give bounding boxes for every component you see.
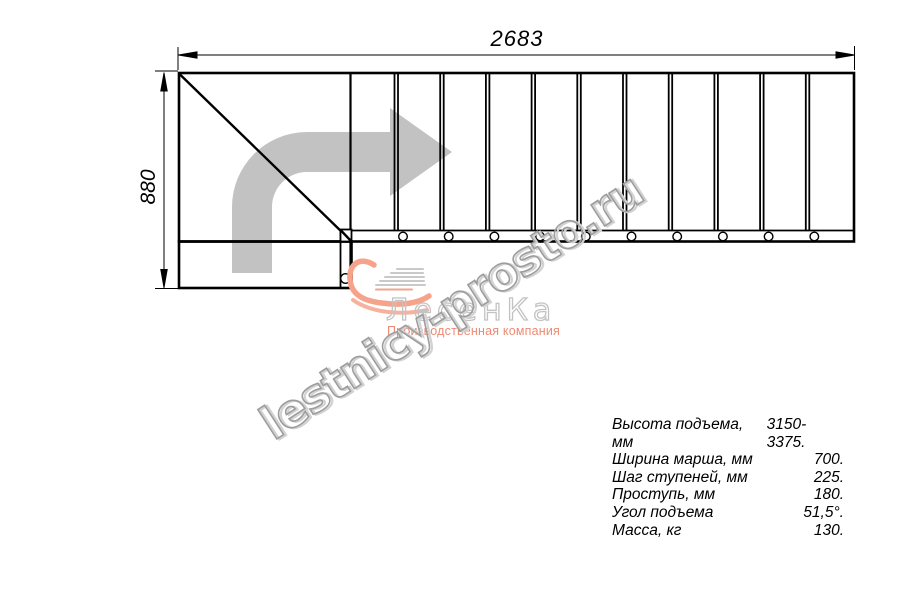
stringer-bolt-circle — [764, 232, 773, 241]
spec-value: 130. — [814, 522, 844, 540]
dim-arrow-right — [836, 52, 855, 58]
stringer-bolt-circle — [810, 232, 819, 241]
specifications-table: Высота подъема, мм3150-3375.Ширина марша… — [612, 416, 844, 539]
spec-label: Угол подъема — [612, 504, 713, 522]
stringer-bolt-circle — [536, 232, 545, 241]
spec-value: 180. — [814, 486, 844, 504]
height-dimension-label: 880 — [137, 152, 159, 222]
spec-value: 225. — [814, 469, 844, 487]
stringer-bolt-circle — [399, 232, 408, 241]
spec-label: Ширина марша, мм — [612, 451, 753, 469]
spec-row: Шаг ступеней, мм225. — [612, 469, 844, 487]
spec-row: Масса, кг130. — [612, 522, 844, 540]
spec-row: Высота подъема, мм3150-3375. — [612, 416, 844, 451]
stringer-bolt-circle — [673, 232, 682, 241]
stringer-bolt-circle — [444, 232, 453, 241]
spec-value: 51,5°. — [803, 504, 844, 522]
logo-tagline: Производственная компания — [387, 324, 560, 338]
direction-arrow — [232, 108, 452, 273]
spec-row: Ширина марша, мм700. — [612, 451, 844, 469]
swoosh-ladder-lines — [376, 269, 425, 285]
dim-arrow-down — [161, 270, 167, 288]
spec-label: Проступь, мм — [612, 486, 715, 504]
spec-value: 700. — [814, 451, 844, 469]
stringer-bolt-circle — [490, 232, 499, 241]
logo-company-name: ЛесенКа — [386, 293, 556, 328]
stringer-bolt-circle — [719, 232, 728, 241]
width-dimension-label: 2683 — [377, 26, 657, 52]
spec-value: 3150-3375. — [767, 416, 844, 451]
staircase-drawing-canvas: ЛесенКа 2683 880 Производственная компан… — [0, 0, 900, 600]
spec-label: Масса, кг — [612, 522, 681, 540]
dim-arrow-left — [179, 52, 198, 58]
spec-label: Шаг ступеней, мм — [612, 469, 748, 487]
spec-label: Высота подъема, мм — [612, 416, 767, 451]
steps-group — [395, 72, 819, 241]
stringer-bolt-circle — [627, 232, 636, 241]
dim-arrow-up — [161, 73, 167, 91]
stringer-bolt-circle — [582, 232, 591, 241]
spec-row: Проступь, мм180. — [612, 486, 844, 504]
spec-row: Угол подъема51,5°. — [612, 504, 844, 522]
